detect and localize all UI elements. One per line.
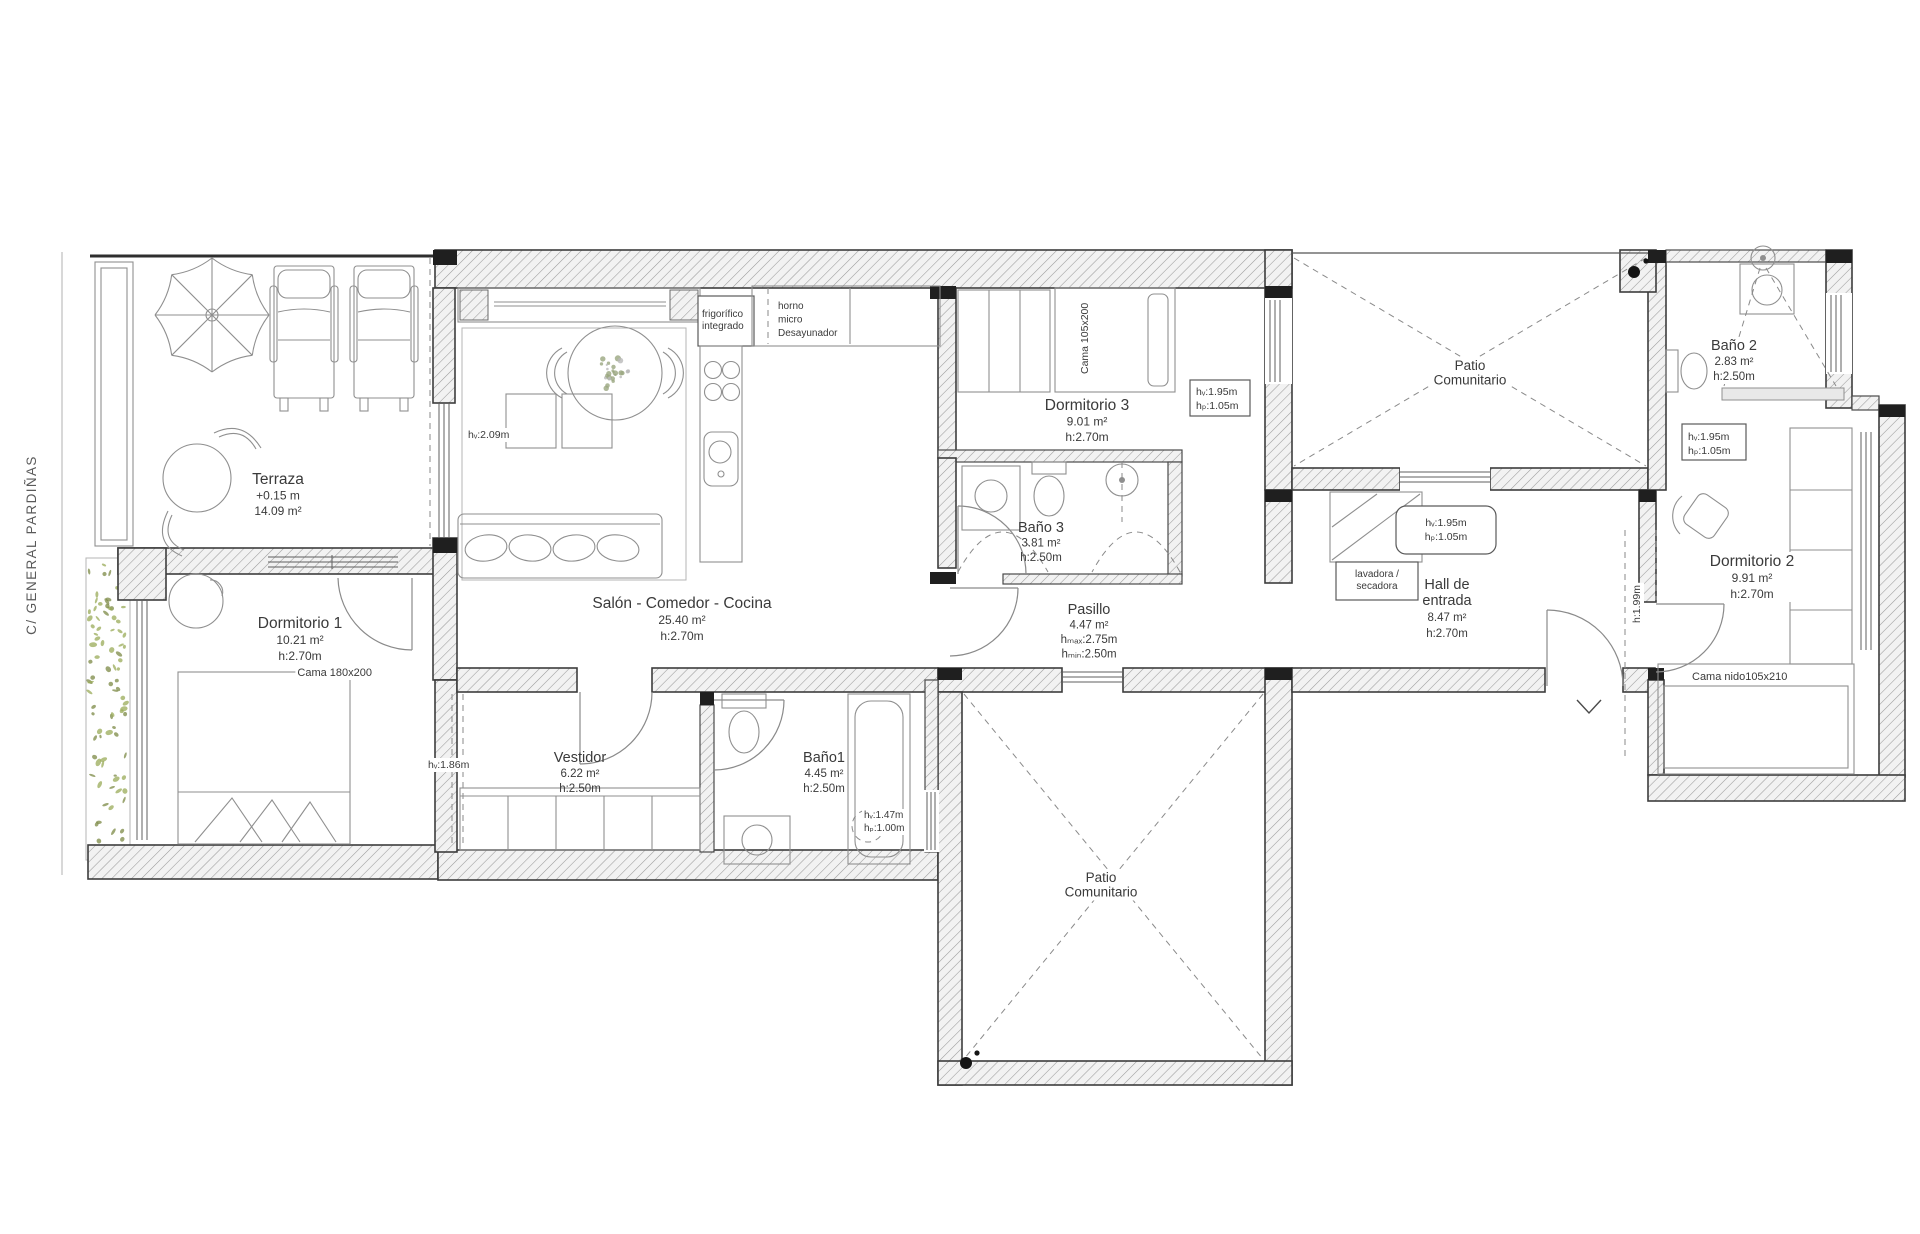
label-h199: h:1.99m	[1631, 585, 1643, 623]
table-flowers	[611, 365, 615, 369]
label-camanido: Cama nido105x210	[1692, 671, 1787, 683]
label-street: C/ GENERAL PARDIÑAS	[24, 455, 39, 635]
table-flowers	[618, 370, 623, 375]
label-vestidor: Vestidor6.22 m²h:2.50m	[554, 750, 607, 795]
table-flowers	[600, 362, 603, 365]
label-bano1: Baño14.45 m²h:2.50m	[803, 750, 845, 795]
label-cama180: Cama 180x200	[297, 667, 372, 679]
patio-bottom-marker-icon	[960, 1057, 972, 1069]
label-frigo: frigoríficointegrado	[702, 309, 744, 332]
umbrella-canopy	[155, 258, 269, 372]
table-flowers	[604, 386, 609, 391]
window-bano2-right	[1826, 293, 1852, 374]
patio-top-marker-icon	[1628, 266, 1640, 278]
label-hv209: hᵥ:2.09m	[468, 429, 510, 441]
label-terraza: Terraza+0.15 m14.09 m²	[252, 471, 304, 518]
label-hall: Hall deentrada8.47 m²h:2.70m	[1422, 577, 1472, 640]
window-hall-patio	[1400, 466, 1490, 492]
label-bano2: Baño 22.83 m²h:2.50m	[1711, 338, 1757, 383]
table-flowers	[618, 358, 624, 364]
patio-bottom-marker-dot-icon	[974, 1050, 979, 1055]
floor-plan-svg: C/ GENERAL PARDIÑASTerraza+0.15 m14.09 m…	[0, 0, 1920, 1229]
label-hv186: hᵥ:1.86m	[428, 759, 470, 771]
table-flowers	[606, 368, 609, 371]
planter-leaf	[96, 821, 102, 824]
label-bano3: Baño 33.81 m²h:2.50m	[1018, 520, 1064, 564]
floor-plan: C/ GENERAL PARDIÑASTerraza+0.15 m14.09 m…	[0, 0, 1920, 1234]
table-flowers	[600, 356, 605, 361]
table-flowers	[608, 377, 612, 381]
window-dorm3-patio	[1265, 298, 1292, 384]
table-flowers	[619, 376, 622, 379]
window-bano1-patio	[924, 790, 939, 852]
table-flowers	[606, 371, 611, 376]
patio-top-marker-dot-icon	[1643, 258, 1648, 263]
label-cama105: Cama 105x200	[1079, 303, 1091, 374]
label-lavadora: lavadora /secadora	[1355, 569, 1399, 592]
table-flowers	[612, 371, 614, 373]
hall-window-label-box	[1396, 506, 1496, 554]
table-flowers	[626, 369, 630, 373]
window-dorm1-terraza	[268, 555, 398, 569]
counter-bano2	[1722, 388, 1844, 400]
umbrella-icon	[155, 258, 269, 372]
table-flowers	[606, 364, 608, 366]
